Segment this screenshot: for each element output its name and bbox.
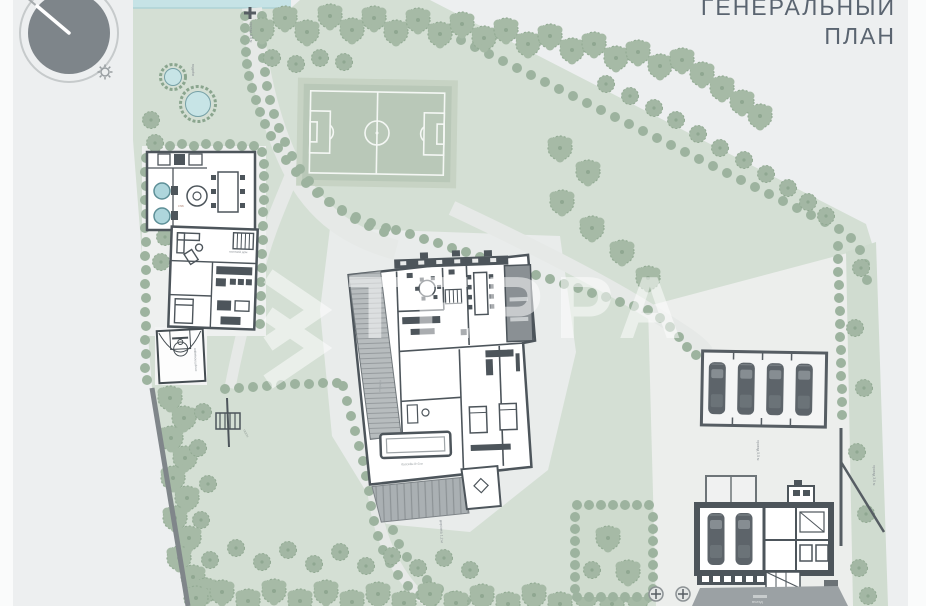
sauna-building: спа [147,152,255,230]
page-title: ГЕНЕРАЛЬНЫЙ ПЛАН [701,0,896,51]
plunge-tub [154,183,170,199]
watermark-text: ТЕРРА [348,258,694,357]
garage-car [708,513,725,565]
basketball-court: спортплощадка [157,329,206,383]
label-pool: бассейн 8×3 м [401,462,423,467]
parked-car [795,364,813,416]
parked-car [708,362,726,414]
parked-car [737,363,755,415]
hedge-garden [570,500,658,602]
water-strip [133,0,291,8]
parking-area [701,351,826,427]
guest-house: гостевой дом [168,227,257,330]
dining-table [218,172,238,212]
label-side-road: проезд 5,5 м [756,440,760,461]
label-top-road: проезд 3,5 м [249,22,253,43]
label-pond: водоём [191,64,195,77]
parked-car [766,363,784,415]
genplan-canvas: спа гостевой дом спортплощадка [0,0,926,606]
right-margin [908,0,926,606]
driveway [692,586,848,606]
label-right-road: проезд 3,5 м [872,465,876,486]
page-title-line1: ГЕНЕРАЛЬНЫЙ [701,0,896,22]
page-title-line2: ПЛАН [701,22,896,51]
soccer-field [296,78,458,189]
plunge-tub [154,208,170,224]
label-walk: дорожка 1,2 м [439,520,444,544]
garage-car [736,513,753,565]
label-terrace: терраса [378,380,382,392]
label-guest-house: гостевой дом [229,250,248,255]
label-spa: спа [178,204,184,208]
left-margin [0,0,13,606]
lap-pool [380,432,451,458]
label-entry: въезд [752,599,763,604]
site-plan-svg: спа гостевой дом спортплощадка [0,0,926,606]
